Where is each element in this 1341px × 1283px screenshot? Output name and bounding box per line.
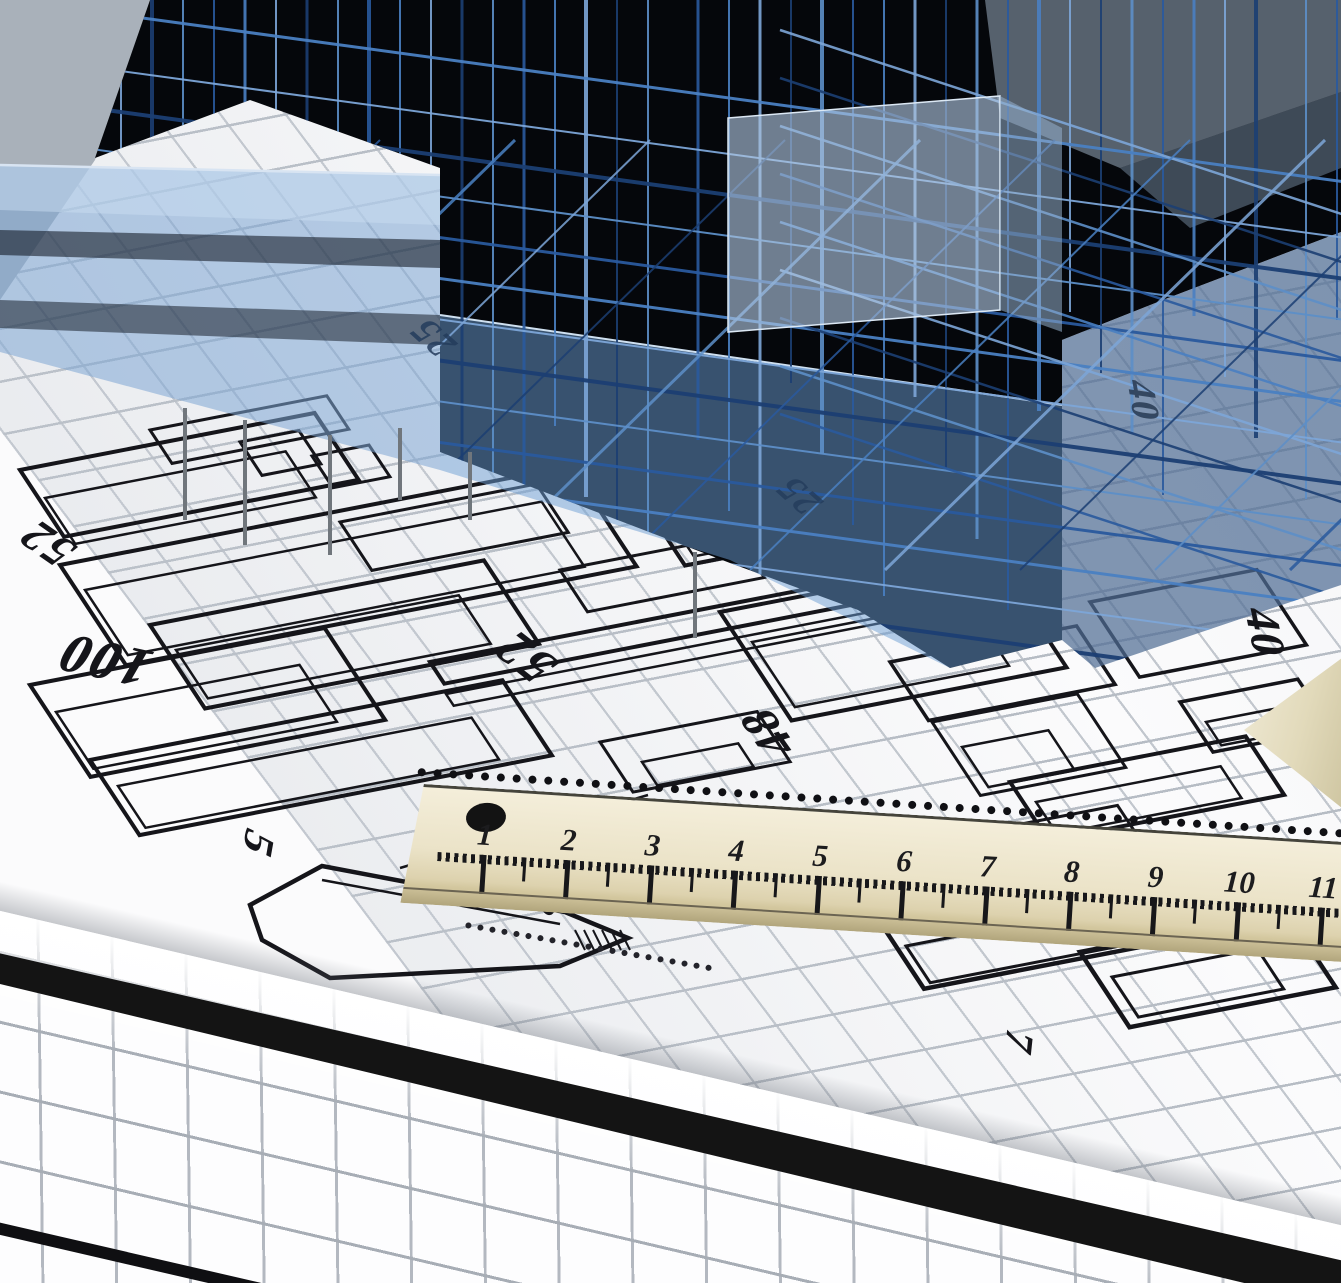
ruler-number: 8 [1063, 853, 1081, 890]
ruler-tick [690, 868, 695, 892]
ruler-number: 1 [476, 816, 494, 853]
ruler-number: 2 [560, 822, 578, 859]
ruler-tick [774, 873, 779, 897]
ruler-tick [522, 857, 527, 881]
glass-volume-side [1000, 96, 1062, 332]
ruler-tick [941, 884, 946, 908]
ruler-tick [1193, 900, 1198, 924]
ruler-number: 11 [1307, 869, 1338, 907]
ruler-number: 3 [644, 827, 662, 864]
ruler-tick [1277, 905, 1282, 929]
glass-volume [728, 96, 1000, 332]
ruler-number: 9 [1147, 859, 1165, 896]
ruler-number: 10 [1223, 863, 1256, 901]
dimension-label: 40 [1236, 606, 1294, 660]
ruler-number: 5 [811, 838, 829, 875]
dimension-label: 40 [1120, 378, 1167, 425]
ruler-number: 6 [895, 843, 913, 880]
ruler-tick [857, 879, 862, 903]
blueprint-scene: 52 100 25 25 52 48 40 40 5 48 7 1 2 3 4 … [0, 0, 1341, 1283]
ruler-tick [1025, 889, 1030, 913]
ruler-number: 4 [728, 832, 746, 869]
ruler-minor-ticks [437, 852, 1341, 919]
ruler-tick [606, 863, 611, 887]
ruler-tick [1109, 894, 1114, 918]
ruler-number: 7 [979, 848, 997, 885]
